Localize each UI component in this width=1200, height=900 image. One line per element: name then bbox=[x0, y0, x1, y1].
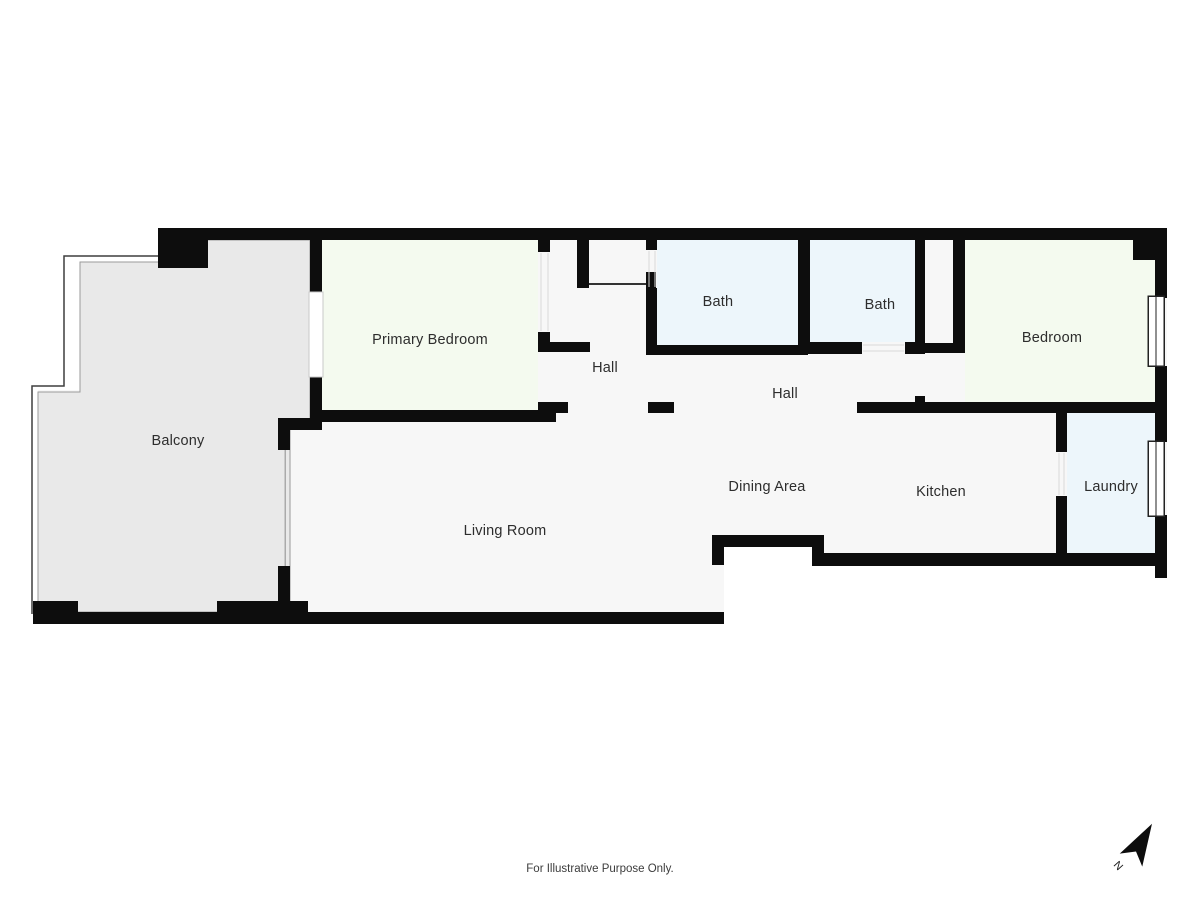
wall-bath1-nub-top bbox=[646, 240, 657, 250]
wall-bath2-closet-divider bbox=[915, 240, 925, 352]
wall-topleft-block bbox=[158, 228, 208, 268]
footer-note: For Illustrative Purpose Only. bbox=[526, 863, 673, 875]
wall-entry-left-stub bbox=[712, 535, 724, 565]
room-label-bedroom: Bedroom bbox=[1022, 330, 1082, 346]
wall-bottom-right bbox=[812, 553, 1167, 566]
room-label-laundry: Laundry bbox=[1084, 479, 1138, 495]
wall-hall-bottom-left bbox=[538, 402, 568, 413]
bath2-floor bbox=[810, 240, 915, 342]
wall-closet-bottom-left bbox=[538, 342, 590, 352]
room-label-primary-bedroom: Primary Bedroom bbox=[372, 332, 488, 348]
wall-kitchen-laundry-top bbox=[1056, 413, 1067, 452]
wall-pb-right-nub-top bbox=[538, 240, 550, 252]
wall-bedroom-left bbox=[953, 240, 965, 345]
wall-bottom-main bbox=[38, 612, 724, 624]
wall-kitchen-laundry-bottom bbox=[1056, 496, 1067, 566]
north-arrow-icon bbox=[1120, 817, 1164, 866]
bath1-floor bbox=[657, 240, 798, 345]
room-label-bath-1: Bath bbox=[703, 294, 734, 310]
wall-balcony-divider-top bbox=[278, 418, 290, 450]
room-label-kitchen: Kitchen bbox=[916, 484, 966, 500]
wall-pb-left-top bbox=[310, 240, 322, 292]
wall-pillar-2 bbox=[217, 601, 308, 624]
wall-closet2-bottom bbox=[905, 343, 965, 353]
room-label-balcony: Balcony bbox=[152, 433, 206, 449]
room-label-hall-center: Hall bbox=[772, 386, 798, 402]
wall-bath2-bottom bbox=[798, 342, 862, 354]
balcony-floor bbox=[38, 240, 310, 612]
wall-entry-top bbox=[712, 535, 824, 547]
north-compass: N bbox=[1110, 817, 1164, 883]
pb-balcony-opening bbox=[309, 292, 323, 377]
room-label-living-room: Living Room bbox=[464, 523, 547, 539]
wall-closet-nub-left bbox=[577, 272, 587, 288]
wall-pillar-1 bbox=[33, 601, 78, 624]
wall-pb-bottom bbox=[310, 410, 556, 422]
wall-bath-divider bbox=[798, 240, 810, 350]
wall-bath1-left bbox=[646, 288, 657, 348]
compass-n-label: N bbox=[1111, 859, 1125, 873]
bedroom-floor bbox=[965, 240, 1155, 405]
wall-hall-kitchen bbox=[857, 402, 1157, 413]
wall-right-3 bbox=[1155, 515, 1167, 578]
room-label-dining-area: Dining Area bbox=[728, 479, 806, 495]
wall-top bbox=[158, 228, 1167, 240]
wall-right-1 bbox=[1155, 240, 1167, 298]
wall-hall-bottom-right bbox=[648, 402, 674, 413]
wall-balcony-divider-bottom bbox=[278, 566, 290, 618]
wall-bedroom-corner bbox=[1133, 240, 1155, 260]
floor-plan: Balcony Primary Bedroom Hall Bath Bath B… bbox=[0, 0, 1200, 900]
entry-door-opening bbox=[712, 565, 724, 612]
wall-bath1-bottom bbox=[646, 345, 808, 355]
primary-bedroom-floor bbox=[322, 240, 538, 410]
floor-plan-canvas: Balcony Primary Bedroom Hall Bath Bath B… bbox=[0, 0, 1200, 900]
room-label-bath-2: Bath bbox=[865, 297, 896, 313]
room-label-hall-left: Hall bbox=[592, 360, 618, 376]
